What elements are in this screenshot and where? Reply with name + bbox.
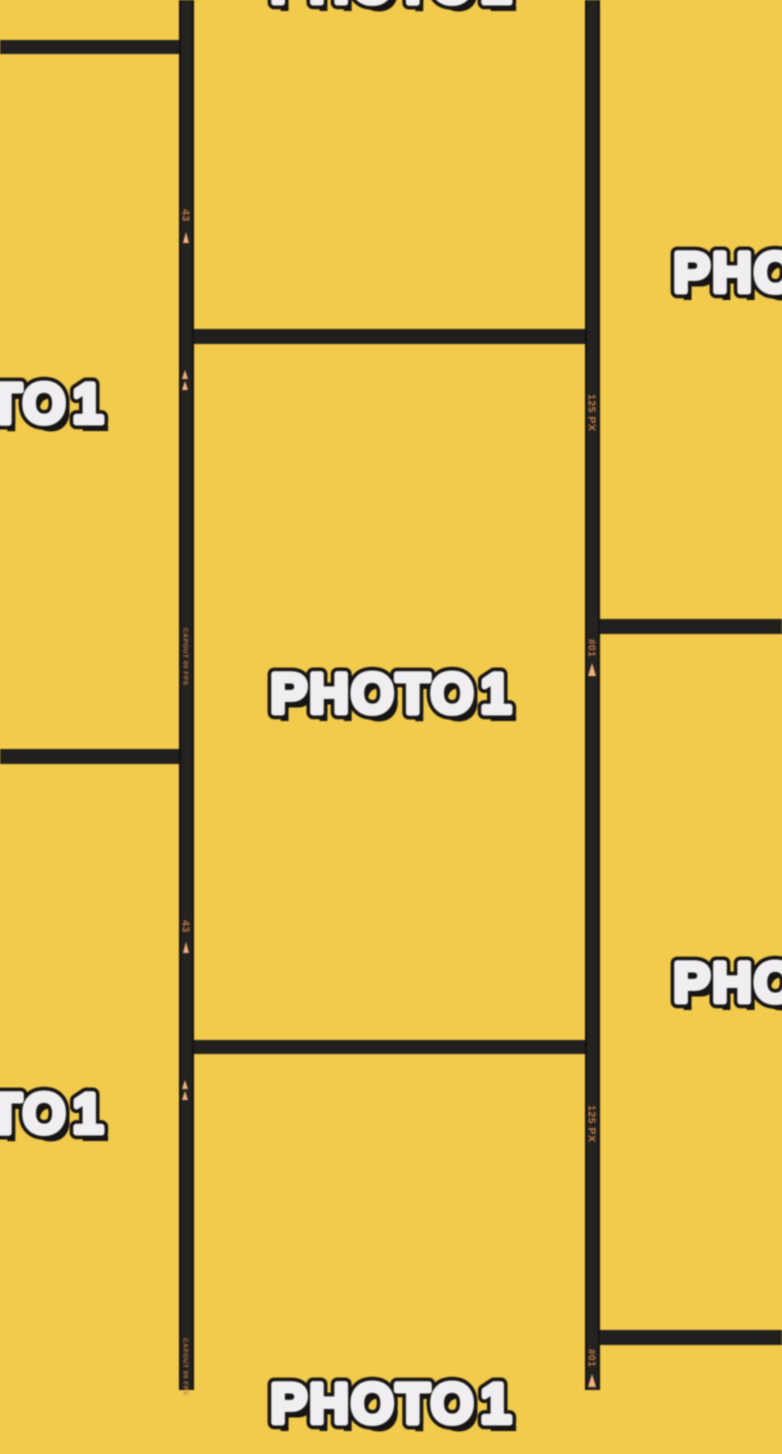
svg-text:PHOTO 1: PHOTO 1 bbox=[673, 951, 782, 1014]
svg-text:43: 43 bbox=[180, 209, 192, 222]
svg-text:PHOTO 1: PHOTO 1 bbox=[673, 241, 782, 304]
svg-text:43: 43 bbox=[180, 920, 192, 933]
svg-text:CAPOUT 00 FPS: CAPOUT 00 FPS bbox=[182, 628, 189, 686]
svg-text:CAPOUT 00 FPS: CAPOUT 00 FPS bbox=[182, 1338, 189, 1396]
svg-text:#01: #01 bbox=[586, 1349, 597, 1367]
svg-text:#01: #01 bbox=[586, 639, 597, 657]
svg-text:PHOTO 1: PHOTO 1 bbox=[0, 372, 105, 435]
svg-text:PHOTO 1: PHOTO 1 bbox=[0, 1082, 105, 1145]
svg-text:125 PX: 125 PX bbox=[586, 394, 598, 431]
svg-text:PHOTO 1: PHOTO 1 bbox=[270, 1372, 513, 1435]
svg-text:125 PX: 125 PX bbox=[586, 1105, 598, 1142]
svg-text:PHOTO 1: PHOTO 1 bbox=[270, 0, 513, 15]
svg-text:PHOTO 1: PHOTO 1 bbox=[270, 662, 513, 725]
